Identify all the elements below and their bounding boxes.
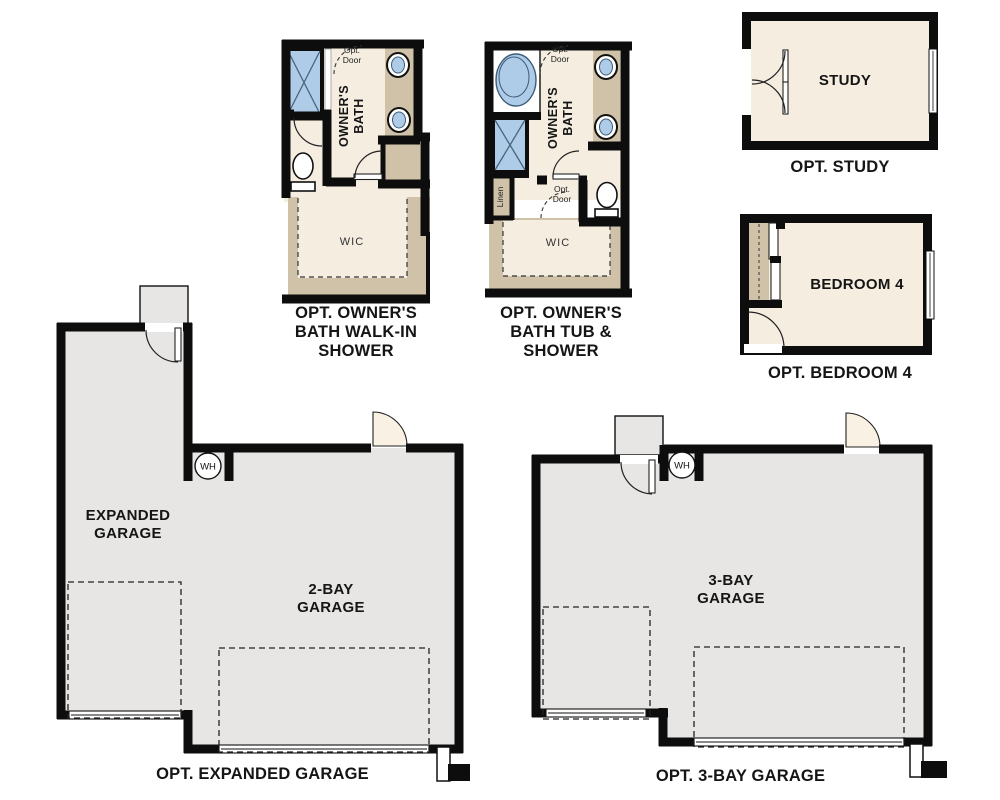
plan-expanded-garage: WH EXPANDED GARAGE 2-BAY GARAGE OPT. EXP… [55, 285, 470, 795]
plan-study: STUDY OPT. STUDY [740, 10, 940, 190]
door-opening [744, 344, 782, 353]
water-heater-label: WH [674, 461, 690, 472]
garage-door [546, 709, 646, 717]
wall-stub [776, 219, 785, 229]
entry-landing [615, 416, 663, 455]
plan-caption: OPT. BEDROOM 4 [740, 364, 940, 383]
plan-caption: OPT. 3-BAY GARAGE [588, 767, 893, 786]
area-label-2bay-garage: 2-BAY GARAGE [281, 581, 381, 617]
plan-bath-tub: Opt. Door OWNER'S BATH Linen Opt. Door W… [483, 36, 639, 368]
sink-icon [595, 55, 617, 79]
room-label-bedroom4: BEDROOM 4 [797, 276, 917, 294]
shower-icon [493, 118, 527, 172]
opt-door-label: Opt. Door [542, 45, 578, 64]
wall-corner [921, 761, 947, 778]
wic-label: WIC [322, 236, 382, 248]
entry-landing [140, 286, 188, 325]
area-label-expanded-garage: EXPANDED GARAGE [68, 507, 188, 543]
sink-icon [387, 53, 409, 77]
garage-door [694, 738, 904, 746]
room-label-owners-bath: OWNER'S BATH [546, 78, 578, 158]
opt-door-label: Opt. Door [544, 185, 580, 204]
water-heater-icon: WH [195, 453, 221, 479]
room-label-study: STUDY [785, 72, 905, 90]
window-icon [926, 251, 934, 319]
service-door [373, 412, 407, 446]
room-label-owners-bath: OWNER'S BATH [337, 76, 369, 156]
area-label-3bay-garage: 3-BAY GARAGE [681, 572, 781, 608]
wic-label: WIC [528, 237, 588, 249]
water-heater-label: WH [200, 462, 216, 473]
sink-icon [595, 115, 617, 139]
wall-stub [770, 256, 781, 263]
plan-3bay-garage: WH 3-BAY GARAGE OPT. 3-BAY GARAGE [530, 405, 950, 795]
plan-caption: OPT. OWNER'S BATH TUB & SHOWER [496, 304, 626, 361]
toilet-icon [291, 153, 315, 191]
tan-block [383, 144, 420, 184]
sink-icon [388, 108, 410, 132]
door-opening [740, 49, 751, 115]
toilet-icon [595, 183, 618, 218]
bathtub-icon [492, 49, 540, 113]
window-icon [929, 49, 937, 113]
wall-corner [448, 764, 470, 781]
plan-caption: OPT. STUDY [740, 158, 940, 177]
service-door [844, 413, 880, 454]
opt-door-label: Opt. Door [334, 46, 370, 65]
plan-caption: OPT. EXPANDED GARAGE [110, 765, 415, 784]
linen-label: Linen [496, 175, 508, 219]
plan-bedroom4: BEDROOM 4 OPT. BEDROOM 4 [738, 212, 943, 390]
closet-wall [745, 300, 782, 308]
floorplan-options-sheet: Opt. Door OWNER'S BATH WIC OPT. OWNER'S … [0, 0, 1000, 800]
water-heater-icon: WH [669, 452, 695, 478]
